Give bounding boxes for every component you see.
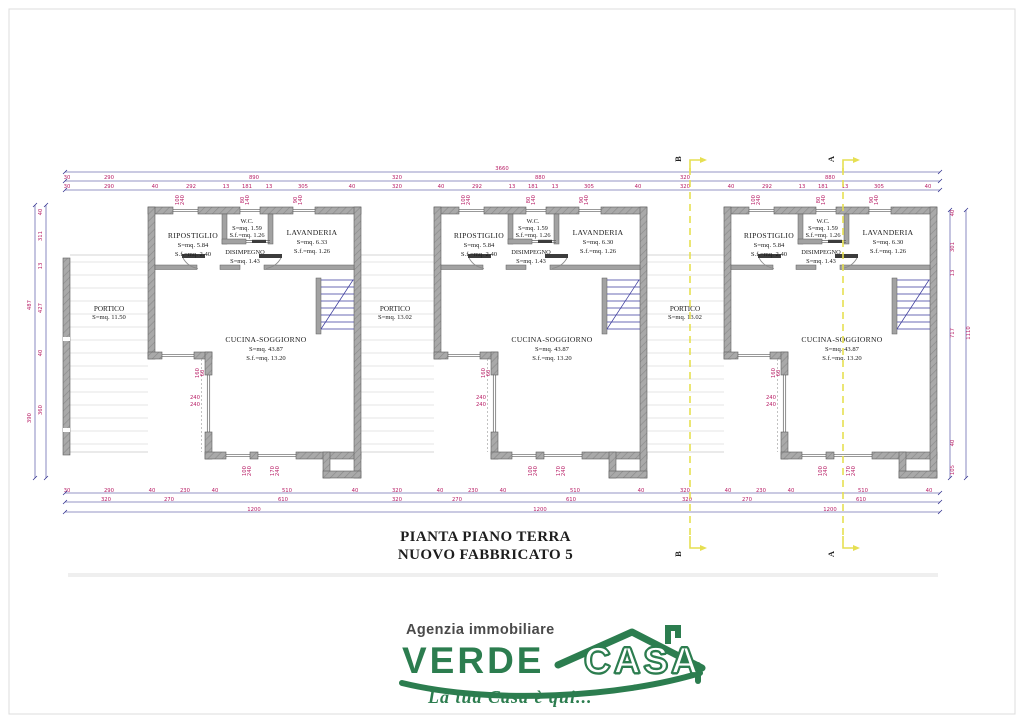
wc-label: W.C. bbox=[241, 218, 254, 225]
dim-label: 240 bbox=[561, 465, 567, 476]
dim-label: 290 bbox=[104, 488, 115, 494]
dim-label: 60 bbox=[486, 369, 492, 376]
disimpegno-label: DISIMPEGNO bbox=[511, 249, 551, 256]
dim-label: 240 bbox=[476, 402, 487, 408]
dim-label: 390 bbox=[27, 412, 33, 423]
dim-label: 320 bbox=[680, 488, 691, 494]
dim-label: 305 bbox=[298, 184, 308, 190]
dim-label: 240 bbox=[466, 194, 472, 205]
dim-label: 13 bbox=[509, 184, 516, 190]
dim-label: 140 bbox=[245, 194, 251, 205]
dim-label: 487 bbox=[27, 300, 33, 310]
dim-label: 40 bbox=[950, 209, 956, 216]
floorplan-drawing: PORTICO S=mq. 11.50 RIPOSTIGLIO S=mq. 5.… bbox=[0, 0, 1024, 723]
dim-label: 230 bbox=[756, 488, 767, 494]
dim-label: 880 bbox=[825, 175, 836, 181]
dim-label: 13 bbox=[799, 184, 806, 190]
section-letter-a-bottom: A bbox=[826, 550, 836, 557]
dim-label: 40 bbox=[950, 439, 956, 446]
svg-text:S.f.=mq. 1.26: S.f.=mq. 1.26 bbox=[805, 232, 840, 239]
svg-text:S=mq. 1.59: S=mq. 1.59 bbox=[232, 225, 262, 232]
dim-label: 181 bbox=[528, 184, 538, 190]
ripostiglio-label: RIPOSTIGLIO bbox=[168, 231, 218, 240]
section-letter-a-top: A bbox=[826, 155, 836, 162]
svg-text:S=mq. 6.30: S=mq. 6.30 bbox=[873, 239, 904, 246]
dim-label: 40 bbox=[152, 184, 159, 190]
portico-pillar-wall bbox=[63, 258, 70, 455]
dim-label: 270 bbox=[164, 497, 175, 503]
portico-label: PORTICO bbox=[94, 305, 124, 313]
title-block: PIANTA PIANO TERRA NUOVO FABBRICATO 5 bbox=[383, 528, 588, 564]
svg-text:S.f.=mq. 13.20: S.f.=mq. 13.20 bbox=[246, 355, 286, 362]
dim-label: 240 bbox=[823, 465, 829, 476]
dim-label: 240 bbox=[190, 402, 201, 408]
portico-paving-1 bbox=[70, 255, 148, 452]
logo-brand-casa: CASA bbox=[584, 640, 701, 682]
dim-label: 40 bbox=[38, 208, 44, 215]
svg-text:S=mq. 43.87: S=mq. 43.87 bbox=[249, 346, 284, 353]
dim-label: 240 bbox=[247, 465, 253, 476]
portico-paving-3 bbox=[647, 255, 724, 452]
svg-text:S.f.=mq. 1.26: S.f.=mq. 1.26 bbox=[580, 248, 617, 255]
dim-label: 140 bbox=[298, 194, 304, 205]
svg-text:S=mq. 1.59: S=mq. 1.59 bbox=[518, 225, 548, 232]
dim-label: 320 bbox=[392, 497, 403, 503]
dim-label: 40 bbox=[349, 184, 356, 190]
dim-label: 13 bbox=[950, 270, 956, 277]
dim-label: 60 bbox=[776, 369, 782, 376]
logo-tagline-top: Agenzia immobiliare bbox=[406, 622, 555, 638]
dim-label: 40 bbox=[438, 184, 445, 190]
dim-label: 13 bbox=[552, 184, 559, 190]
page-border bbox=[9, 9, 1015, 714]
portico-label: PORTICO bbox=[670, 305, 700, 313]
dim-label: 240 bbox=[766, 395, 777, 401]
dim-label: 301 bbox=[950, 242, 956, 252]
drawing-title-line2: NUOVO FABBRICATO 5 bbox=[383, 546, 588, 564]
svg-text:S.f.=mq. 1.26: S.f.=mq. 1.26 bbox=[294, 248, 331, 255]
dim-label: 13 bbox=[38, 263, 44, 270]
dim-label: 510 bbox=[858, 488, 869, 494]
dim-label: 320 bbox=[682, 497, 693, 503]
dim-label: 40 bbox=[788, 488, 795, 494]
dim-label: 140 bbox=[821, 194, 827, 205]
svg-text:S.f.=mq. 2.40: S.f.=mq. 2.40 bbox=[175, 251, 212, 258]
dim-label: 290 bbox=[104, 175, 115, 181]
dim-label: 320 bbox=[680, 175, 691, 181]
dim-label: 240 bbox=[766, 402, 777, 408]
section-letter-b-bottom: B bbox=[673, 551, 683, 557]
dim-label: 40 bbox=[728, 184, 735, 190]
portico-label: PORTICO bbox=[380, 305, 410, 313]
svg-text:S=mq. 6.33: S=mq. 6.33 bbox=[297, 239, 328, 246]
dim-label: 717 bbox=[950, 328, 956, 338]
disimpegno-label: DISIMPEGNO bbox=[225, 249, 265, 256]
dim-label: 1200 bbox=[823, 507, 837, 513]
dim-label: 40 bbox=[38, 349, 44, 356]
svg-text:S=mq. 5.84: S=mq. 5.84 bbox=[754, 242, 785, 249]
agency-logo: Agenzia immobiliare VERDE CASA La tua Ca… bbox=[392, 621, 724, 721]
dim-label: 610 bbox=[856, 497, 867, 503]
dim-label: 1200 bbox=[533, 507, 547, 513]
dim-label: 290 bbox=[104, 184, 115, 190]
dim-label: 40 bbox=[149, 488, 156, 494]
dim-label: 40 bbox=[725, 488, 732, 494]
dim-label: 60 bbox=[200, 369, 206, 376]
dim-label: 140 bbox=[874, 194, 880, 205]
svg-text:S=mq. 5.84: S=mq. 5.84 bbox=[464, 242, 495, 249]
portico-area: S=mq. 13.02 bbox=[668, 314, 702, 321]
dim-label: 240 bbox=[851, 465, 857, 476]
svg-text:S=mq. 6.30: S=mq. 6.30 bbox=[583, 239, 614, 246]
dim-label: 240 bbox=[476, 395, 487, 401]
svg-text:S=mq. 1.43: S=mq. 1.43 bbox=[516, 258, 546, 265]
disimpegno-label: DISIMPEGNO bbox=[801, 249, 841, 256]
dim-label: 311 bbox=[38, 231, 44, 241]
svg-text:S.f.=mq. 13.20: S.f.=mq. 13.20 bbox=[532, 355, 572, 362]
dim-label: 270 bbox=[452, 497, 463, 503]
logo-brand-verde: VERDE bbox=[402, 640, 544, 682]
cucina-label: CUCINA-SOGGIORNO bbox=[801, 335, 882, 344]
section-letter-b-top: B bbox=[673, 156, 683, 162]
dim-label: 40 bbox=[437, 488, 444, 494]
dim-label: 240 bbox=[275, 465, 281, 476]
unit-plan-3: PORTICO S=mq. 13.02 RIPOSTIGLIO S=mq. 5.… bbox=[668, 194, 937, 478]
dim-label: 105 bbox=[950, 465, 956, 475]
dim-label: 230 bbox=[468, 488, 479, 494]
lavanderia-label: LAVANDERIA bbox=[287, 228, 338, 237]
dim-label: 13 bbox=[266, 184, 273, 190]
logo-tagline-bottom: La tua Casa è qui... bbox=[428, 687, 593, 708]
dim-label: 40 bbox=[352, 488, 359, 494]
drawing-title-line1: PIANTA PIANO TERRA bbox=[383, 528, 588, 546]
dim-label: 305 bbox=[874, 184, 884, 190]
cucina-label: CUCINA-SOGGIORNO bbox=[511, 335, 592, 344]
dim-label: 320 bbox=[101, 497, 112, 503]
dim-label: 40 bbox=[500, 488, 507, 494]
dim-label: 40 bbox=[635, 184, 642, 190]
svg-text:S.f.=mq. 1.26: S.f.=mq. 1.26 bbox=[870, 248, 907, 255]
svg-text:S=mq. 1.59: S=mq. 1.59 bbox=[808, 225, 838, 232]
dim-label: 240 bbox=[756, 194, 762, 205]
dim-label: 240 bbox=[180, 194, 186, 205]
dim-label: 360 bbox=[38, 404, 44, 415]
dim-label: 230 bbox=[180, 488, 191, 494]
dim-label: 181 bbox=[818, 184, 828, 190]
dim-label: 320 bbox=[392, 175, 403, 181]
dim-label: 1110 bbox=[966, 326, 972, 340]
dim-label: 270 bbox=[742, 497, 753, 503]
svg-text:S.f.=mq. 1.26: S.f.=mq. 1.26 bbox=[515, 232, 550, 239]
dim-label: 292 bbox=[186, 184, 196, 190]
svg-text:S=mq. 5.84: S=mq. 5.84 bbox=[178, 242, 209, 249]
cucina-label: CUCINA-SOGGIORNO bbox=[225, 335, 306, 344]
portico-paving-2 bbox=[361, 255, 434, 452]
portico-area: S=mq. 11.50 bbox=[92, 314, 126, 321]
dim-label: 320 bbox=[392, 488, 403, 494]
dim-label: 30 bbox=[64, 175, 71, 181]
svg-text:S.f.=mq. 2.40: S.f.=mq. 2.40 bbox=[461, 251, 498, 258]
dim-label: 140 bbox=[584, 194, 590, 205]
scan-artifact-band bbox=[68, 573, 938, 577]
dim-label: 40 bbox=[925, 184, 932, 190]
dim-label: 40 bbox=[926, 488, 933, 494]
dim-label: 3660 bbox=[495, 166, 509, 172]
dim-label: 240 bbox=[190, 395, 201, 401]
dim-label: 30 bbox=[64, 184, 71, 190]
dim-label: 140 bbox=[531, 194, 537, 205]
svg-text:S=mq. 1.43: S=mq. 1.43 bbox=[806, 258, 836, 265]
dim-label: 890 bbox=[249, 175, 260, 181]
lavanderia-label: LAVANDERIA bbox=[863, 228, 914, 237]
lavanderia-label: LAVANDERIA bbox=[573, 228, 624, 237]
wc-label: W.C. bbox=[527, 218, 540, 225]
dim-label: 510 bbox=[570, 488, 581, 494]
ripostiglio-label: RIPOSTIGLIO bbox=[744, 231, 794, 240]
svg-text:S=mq. 1.43: S=mq. 1.43 bbox=[230, 258, 260, 265]
dim-label: 610 bbox=[278, 497, 289, 503]
dim-label: 320 bbox=[680, 184, 691, 190]
dim-label: 320 bbox=[392, 184, 403, 190]
unit-plan-1: PORTICO S=mq. 11.50 RIPOSTIGLIO S=mq. 5.… bbox=[92, 194, 361, 478]
dim-label: 40 bbox=[212, 488, 219, 494]
dim-label: 181 bbox=[242, 184, 252, 190]
dim-label: 610 bbox=[566, 497, 577, 503]
dim-label: 13 bbox=[223, 184, 230, 190]
dim-label: 427 bbox=[38, 303, 44, 313]
dim-label: 305 bbox=[584, 184, 594, 190]
dim-label: 1200 bbox=[247, 507, 261, 513]
dim-label: 292 bbox=[762, 184, 772, 190]
dim-label: 510 bbox=[282, 488, 293, 494]
dim-label: 240 bbox=[533, 465, 539, 476]
ripostiglio-label: RIPOSTIGLIO bbox=[454, 231, 504, 240]
section-line-b: B B bbox=[673, 156, 707, 557]
wc-label: W.C. bbox=[817, 218, 830, 225]
portico-area: S=mq. 13.02 bbox=[378, 314, 412, 321]
svg-text:S=mq. 43.87: S=mq. 43.87 bbox=[535, 346, 570, 353]
dim-label: 292 bbox=[472, 184, 482, 190]
dim-label: 40 bbox=[638, 488, 645, 494]
svg-text:S.f.=mq. 2.40: S.f.=mq. 2.40 bbox=[751, 251, 788, 258]
dim-label: 880 bbox=[535, 175, 546, 181]
svg-text:S.f.=mq. 1.26: S.f.=mq. 1.26 bbox=[229, 232, 264, 239]
unit-plan-2: PORTICO S=mq. 13.02 RIPOSTIGLIO S=mq. 5.… bbox=[378, 194, 647, 478]
